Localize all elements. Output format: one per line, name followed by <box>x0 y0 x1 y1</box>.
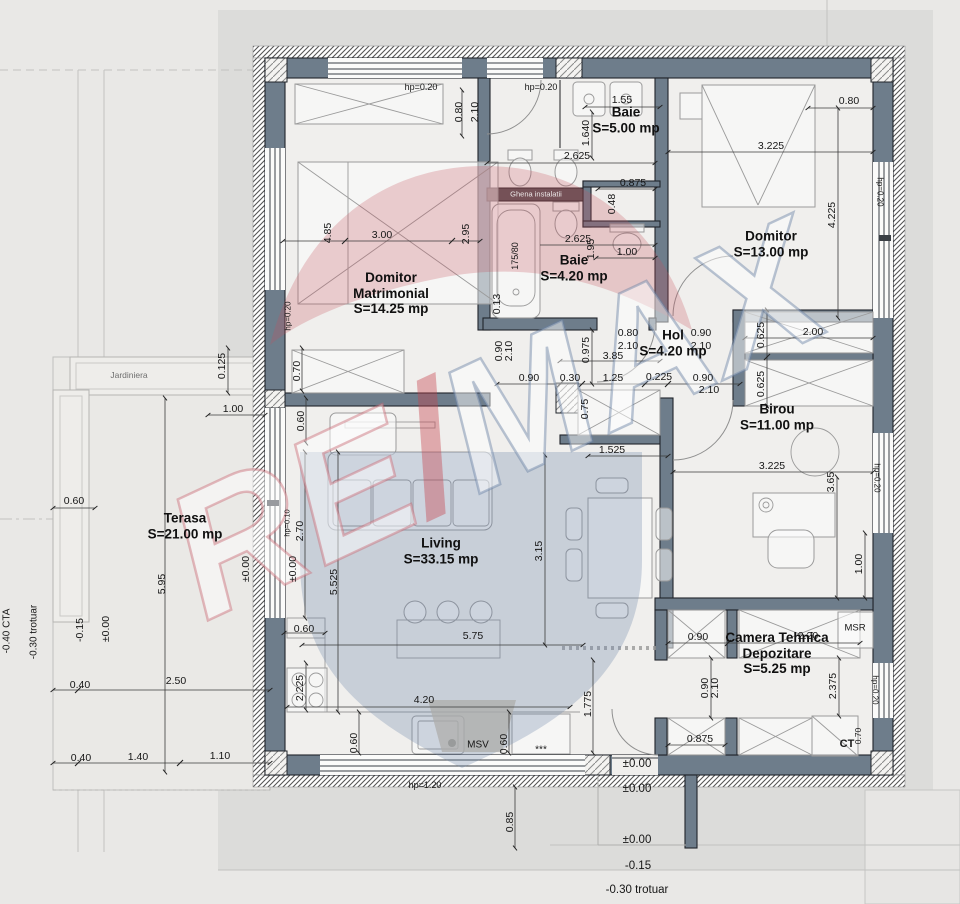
terrace <box>53 357 270 790</box>
sink <box>610 82 642 116</box>
floor-plan-drawing <box>0 0 960 904</box>
sofa <box>330 413 396 455</box>
bed <box>702 85 815 207</box>
sink <box>573 82 605 116</box>
desk-chair <box>768 530 814 568</box>
floor-plan: RE/MAX BaieS=5.00 mpDomitorS=13.00 mpBai… <box>0 0 960 904</box>
